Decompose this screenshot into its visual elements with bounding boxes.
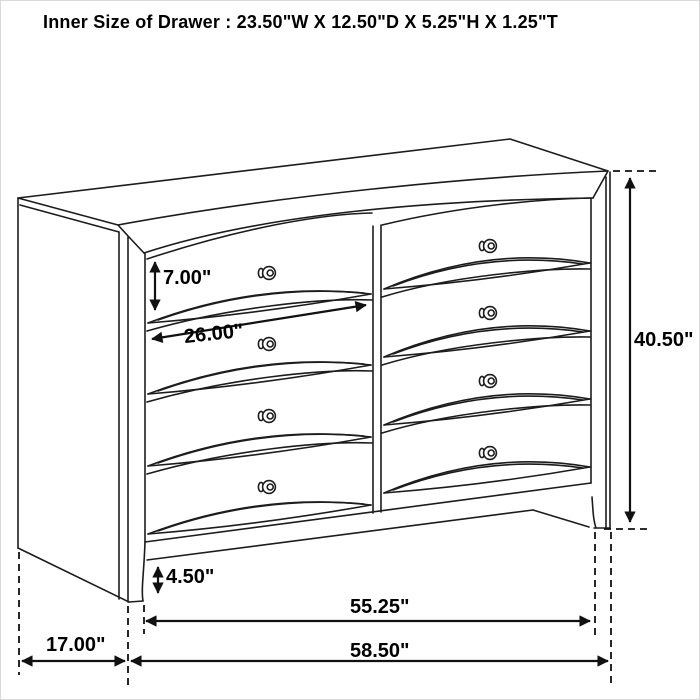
- knob-icon: [258, 267, 275, 280]
- knob-icon: [258, 338, 275, 351]
- dim-label-front-width: 55.25": [350, 596, 410, 619]
- projection-lines: [19, 171, 656, 688]
- drawer-knobs: [258, 240, 496, 494]
- knob-icon: [479, 447, 496, 460]
- knob-icon: [479, 240, 496, 253]
- dim-label-side-depth: 17.00": [46, 634, 106, 657]
- dim-label-drawer-height: 7.00": [163, 267, 211, 290]
- knob-icon: [479, 375, 496, 388]
- dimension-arrows: [22, 178, 630, 661]
- dresser-side-panel: [18, 198, 129, 602]
- dimension-diagram-page: Inner Size of Drawer : 23.50"W X 12.50"D…: [0, 0, 700, 700]
- knob-icon: [258, 481, 275, 494]
- knob-icon: [258, 410, 275, 423]
- knob-icon: [479, 307, 496, 320]
- dim-label-overall-height: 40.50": [634, 329, 694, 352]
- dim-label-overall-width: 58.50": [350, 640, 410, 663]
- dresser-top-slab: [18, 139, 608, 253]
- dim-label-base-height: 4.50": [166, 566, 214, 589]
- dresser-base-and-feet: [145, 483, 610, 560]
